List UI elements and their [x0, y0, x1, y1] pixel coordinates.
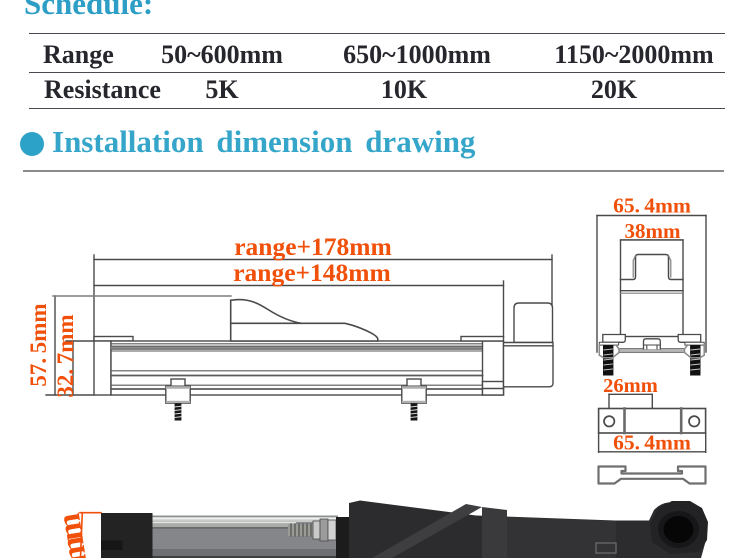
svg-text:mm: mm — [51, 511, 94, 558]
svg-text:65. 4mm: 65. 4mm — [613, 431, 691, 455]
svg-text:range+178mm: range+178mm — [234, 232, 392, 261]
svg-text:range+148mm: range+148mm — [233, 258, 391, 287]
svg-text:26mm: 26mm — [603, 375, 658, 397]
svg-text:65. 4mm: 65. 4mm — [613, 194, 691, 218]
svg-text:32. 7mm: 32. 7mm — [53, 314, 78, 397]
svg-text:57. 5mm: 57. 5mm — [26, 303, 51, 386]
